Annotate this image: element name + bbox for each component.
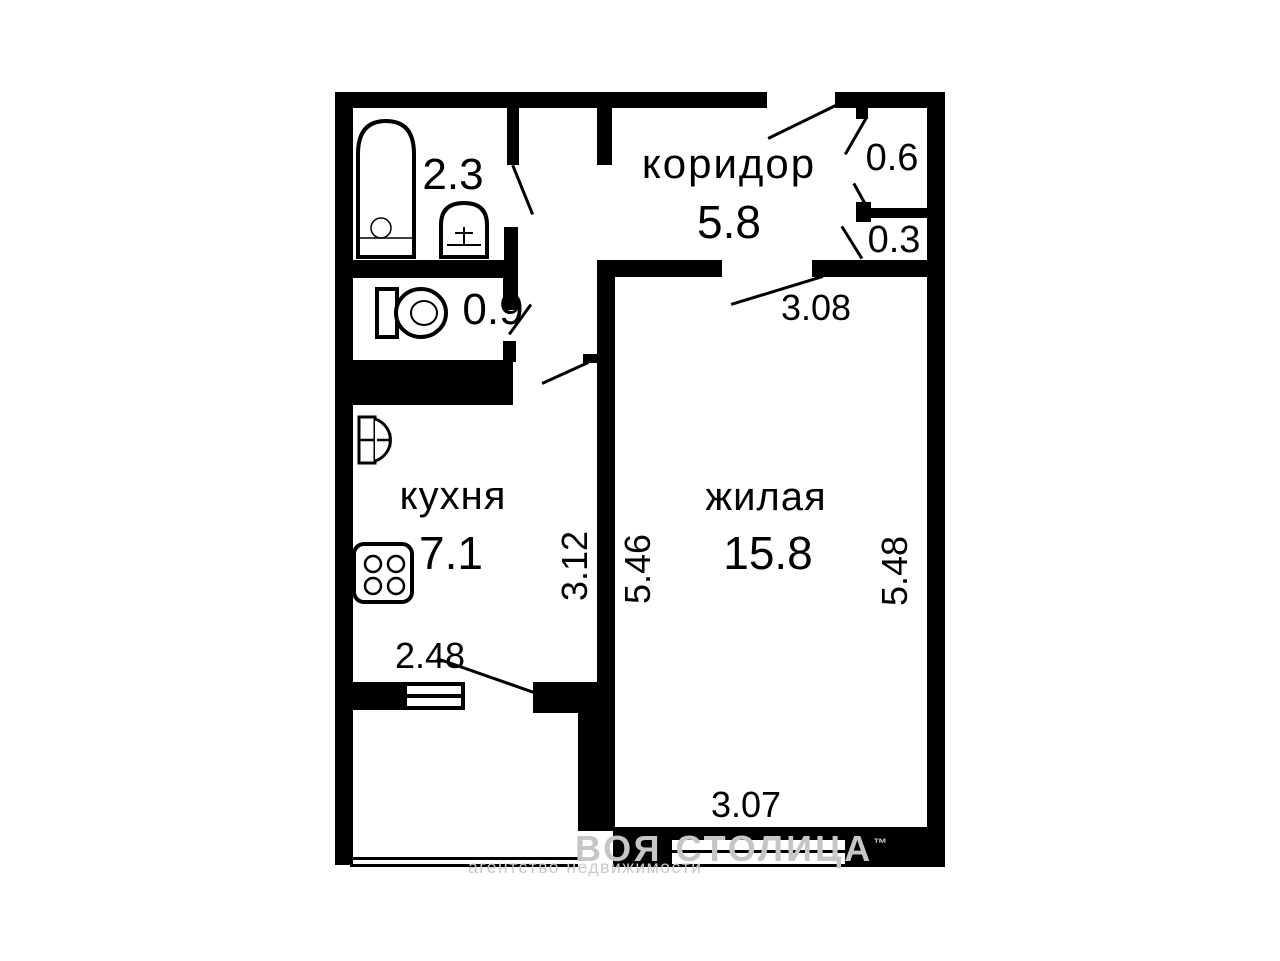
- wall-living-top-right: [812, 260, 928, 277]
- stove-icon: [351, 541, 415, 605]
- living-name-label: жилая: [705, 477, 826, 517]
- corridor-area-label: 5.8: [697, 199, 761, 245]
- wall-bath-toilet-divider: [335, 260, 518, 278]
- wall-closet-divider: [868, 208, 928, 218]
- wall-bathroom-right-upper: [507, 108, 519, 165]
- dim-living-bottom-width: 3.07: [711, 787, 781, 823]
- dim-living-depth-right: 5.48: [877, 536, 913, 606]
- toilet-icon: [374, 283, 450, 343]
- closet-top-door-leaf: [844, 116, 868, 155]
- entrance-door-leaf: [767, 104, 836, 140]
- closet-top-leader: [853, 183, 866, 204]
- closet-bottom-leader: [841, 226, 863, 260]
- bathroom-sink-icon: [437, 199, 491, 261]
- watermark-subtitle: агентство недвижимости: [468, 857, 703, 878]
- dim-kitchen-depth: 3.12: [557, 531, 593, 601]
- wall-right: [927, 92, 945, 867]
- kitchen-name-label: кухня: [400, 476, 507, 516]
- kitchen-area-label: 7.1: [419, 530, 483, 576]
- kitchen-window-pane: [407, 698, 461, 706]
- wall-shaft-block: [335, 360, 513, 405]
- wall-kitchen-bottom-left: [335, 682, 403, 710]
- bathtub-icon: [353, 116, 419, 262]
- kitchen-sink-icon: [356, 414, 408, 466]
- floorplan-canvas: коридор 5.8 0.6 0.3 2.3 0.9 кухня 7.1 жи…: [0, 0, 1280, 961]
- wall-top-left: [335, 92, 767, 108]
- dim-kitchen-bottom-width: 2.48: [395, 638, 465, 674]
- kitchen-door-leaf: [541, 361, 588, 384]
- wall-living-left: [597, 260, 615, 715]
- wall-bathroom-right-lower: [504, 227, 518, 262]
- kitchen-window-pane: [407, 686, 461, 694]
- wall-kitchen-bottom-mid: [533, 682, 597, 713]
- wall-corridor-left-stub: [597, 108, 612, 165]
- watermark-trademark: ™: [873, 835, 887, 851]
- bathroom-area-label: 2.3: [422, 153, 483, 197]
- closet-bottom-area-label: 0.3: [868, 221, 921, 259]
- wall-living-top-left: [612, 260, 722, 277]
- living-area-label: 15.8: [723, 530, 813, 576]
- dim-living-top-width: 3.08: [781, 290, 851, 326]
- dim-living-depth-left: 5.46: [620, 534, 656, 604]
- wall-toilet-door-stub: [503, 341, 516, 362]
- wall-living-left-lower: [578, 713, 615, 831]
- corridor-name-label: коридор: [642, 143, 816, 185]
- kitchen-window: [403, 682, 465, 710]
- closet-top-area-label: 0.6: [866, 139, 919, 177]
- bathroom-door-leaf: [512, 165, 534, 215]
- wall-left: [335, 92, 353, 865]
- toilet-area-label: 0.9: [462, 288, 523, 332]
